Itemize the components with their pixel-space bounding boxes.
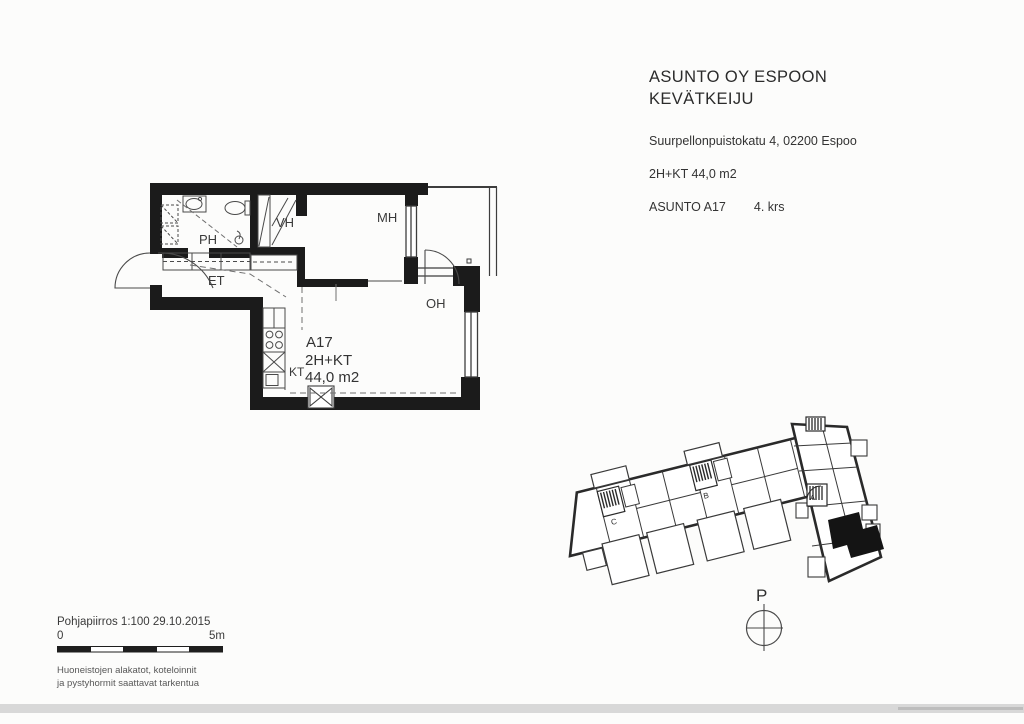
- address-line: Suurpellonpuistokatu 4, 02200 Espoo: [649, 134, 857, 148]
- hatch-symbol: [308, 386, 334, 408]
- wall-hall-vertical: [297, 247, 305, 287]
- sink: [183, 196, 206, 212]
- kitchen-fixtures: [263, 308, 285, 390]
- scan-artifact-band: [0, 704, 1024, 713]
- building-site-plan: C B: [555, 408, 985, 668]
- drawing-title: Pohjapiirros 1:100 29.10.2015: [57, 616, 210, 628]
- dishwasher: [263, 352, 285, 372]
- scale-numbers-row: 0 5m: [57, 630, 225, 642]
- floor-drain: [235, 231, 243, 244]
- wall-left-upper: [150, 183, 162, 254]
- north-label: P: [756, 586, 767, 605]
- wall-oh-right-upper: [464, 284, 480, 312]
- scale-segment-1: [58, 647, 91, 653]
- scale-five-label: 5m: [209, 630, 225, 642]
- entrance-door-outer-swing: [115, 253, 150, 288]
- wall-vh-right: [296, 183, 307, 216]
- wall-top: [150, 183, 428, 195]
- wall-et-bottom: [150, 297, 263, 310]
- scan-artifact-dark-strip: [898, 707, 1023, 710]
- scale-segment-5: [190, 647, 223, 653]
- building-wing: A: [792, 417, 884, 581]
- company-name-line2: KEVÄTKEIJU: [649, 88, 827, 110]
- room-label-kt: KT: [289, 365, 305, 379]
- apartment-floor: 4. krs: [754, 200, 785, 214]
- balcony-drain-mark: [467, 259, 471, 263]
- apartment-type-line: 2H+KT 44,0 m2: [649, 167, 737, 181]
- room-label-et: ET: [208, 273, 225, 288]
- footnote-line1: Huoneistojen alakatot, koteloinnit: [57, 664, 199, 677]
- toilet: [225, 201, 250, 215]
- scale-zero-label: 0: [57, 630, 63, 642]
- room-label-vh: VH: [276, 215, 294, 230]
- room-label-oh: OH: [426, 296, 446, 311]
- footnote-block: Huoneistojen alakatot, koteloinnit ja py…: [57, 664, 199, 690]
- wall-below-vh: [250, 247, 297, 255]
- kitchen-sink: [263, 372, 285, 388]
- header-block: ASUNTO OY ESPOON KEVÄTKEIJU: [649, 66, 827, 110]
- scale-segment-3: [124, 647, 157, 653]
- apartment-floor-plan: PH VH MH ET OH KT A17 2H+KT 44,0 m2: [112, 170, 510, 422]
- scale-segment-4: [157, 647, 190, 653]
- plan-apartment-area: 44,0 m2: [305, 369, 359, 386]
- stove: [263, 328, 285, 352]
- apartment-id-line: ASUNTO A174. krs: [649, 200, 784, 214]
- company-name-line1: ASUNTO OY ESPOON: [649, 66, 827, 88]
- plan-apartment-type: 2H+KT: [305, 352, 352, 369]
- north-indicator: P: [746, 586, 783, 651]
- wing-top-hatch: [806, 417, 825, 431]
- wall-balcony-right-block: [453, 266, 480, 286]
- apartment-id: ASUNTO A17: [649, 200, 726, 214]
- wall-corner-bottom-right: [461, 377, 480, 410]
- wall-ph-right: [250, 195, 258, 248]
- stair-label-a: A: [810, 493, 815, 502]
- mh-window: [405, 206, 417, 257]
- scale-bar: [57, 646, 225, 653]
- footnote-line2: ja pystyhormit saattavat tarkentua: [57, 677, 199, 690]
- plan-apartment-info: A17 2H+KT 44,0 m2: [305, 334, 359, 386]
- fridge: [263, 308, 285, 328]
- wall-mh-right-bottom: [404, 257, 418, 284]
- wall-bottom: [250, 397, 480, 410]
- stairwell-a: A: [807, 484, 827, 506]
- plan-apartment-id: A17: [306, 334, 333, 351]
- floor-plan-document-page: ASUNTO OY ESPOON KEVÄTKEIJU Suurpellonpu…: [0, 0, 1024, 724]
- room-label-ph: PH: [199, 232, 217, 247]
- room-label-mh: MH: [377, 210, 397, 225]
- scale-segment-2: [91, 647, 124, 653]
- wall-mh-right-top: [405, 183, 418, 206]
- wall-kt-left: [250, 297, 263, 410]
- oh-window: [464, 312, 478, 377]
- balcony: [418, 187, 497, 276]
